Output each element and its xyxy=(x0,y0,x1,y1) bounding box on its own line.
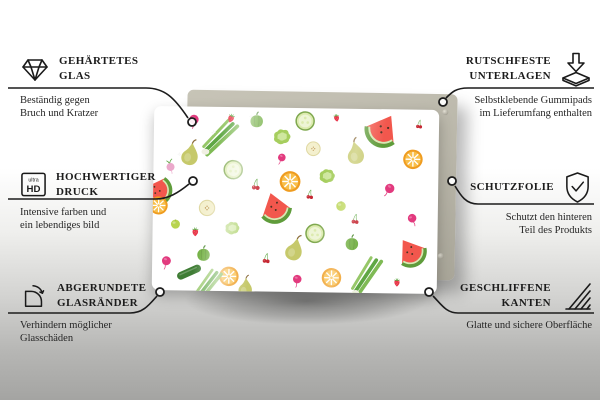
svg-text:ultra: ultra xyxy=(28,178,38,184)
callout-description: Schutzt den hinteren Teil des Produkts xyxy=(382,211,592,237)
anti-slip-pad-icon xyxy=(560,51,592,87)
product-infographic: GEHÄRTETES GLAS Beständig gegen Bruch un… xyxy=(0,0,600,400)
callout-protective-film: SCHUTZFOLIE Schutzt den hinteren Teil de… xyxy=(382,170,592,237)
diamond-icon xyxy=(20,54,50,84)
callout-print-quality: ultra HD HOCHWERTIGER DRUCK Intensive fa… xyxy=(20,170,190,232)
callout-title: GEHÄRTETES GLAS xyxy=(59,54,138,84)
callout-description: Selbstklebende Gummipads im Lieferumfang… xyxy=(382,94,592,120)
callout-title: RUTSCHFESTE UNTERLAGEN xyxy=(466,54,551,84)
ultra-hd-icon: ultra HD xyxy=(20,170,47,199)
callout-tempered-glass: GEHÄRTETES GLAS Beständig gegen Bruch un… xyxy=(20,50,190,120)
callout-description: Glatte und sichere Oberfläche xyxy=(382,319,592,332)
rounded-corner-icon xyxy=(20,282,48,310)
shield-check-icon xyxy=(563,171,592,204)
callout-anti-slip-pads: RUTSCHFESTE UNTERLAGEN Selbstklebende Gu… xyxy=(382,50,592,120)
callout-description: Verhindern möglicher Glasschäden xyxy=(20,319,190,345)
callout-title: GESCHLIFFENE KANTEN xyxy=(460,281,551,311)
callout-polished-edges: GESCHLIFFENE KANTEN Glatte und sichere O… xyxy=(382,279,592,332)
callout-title: HOCHWERTIGER DRUCK xyxy=(56,170,156,200)
callout-title: SCHUTZFOLIE xyxy=(470,180,554,195)
callout-title: ABGERUNDETE GLASRÄNDER xyxy=(57,281,146,311)
callout-rounded-edges: ABGERUNDETE GLASRÄNDER Verhindern möglic… xyxy=(20,279,190,345)
svg-text:HD: HD xyxy=(27,184,41,195)
callout-description: Intensive farben und ein lebendiges bild xyxy=(20,206,190,232)
callout-description: Beständig gegen Bruch und Kratzer xyxy=(20,94,190,120)
screw-hole xyxy=(438,253,444,259)
hatched-edge-icon xyxy=(560,281,592,311)
